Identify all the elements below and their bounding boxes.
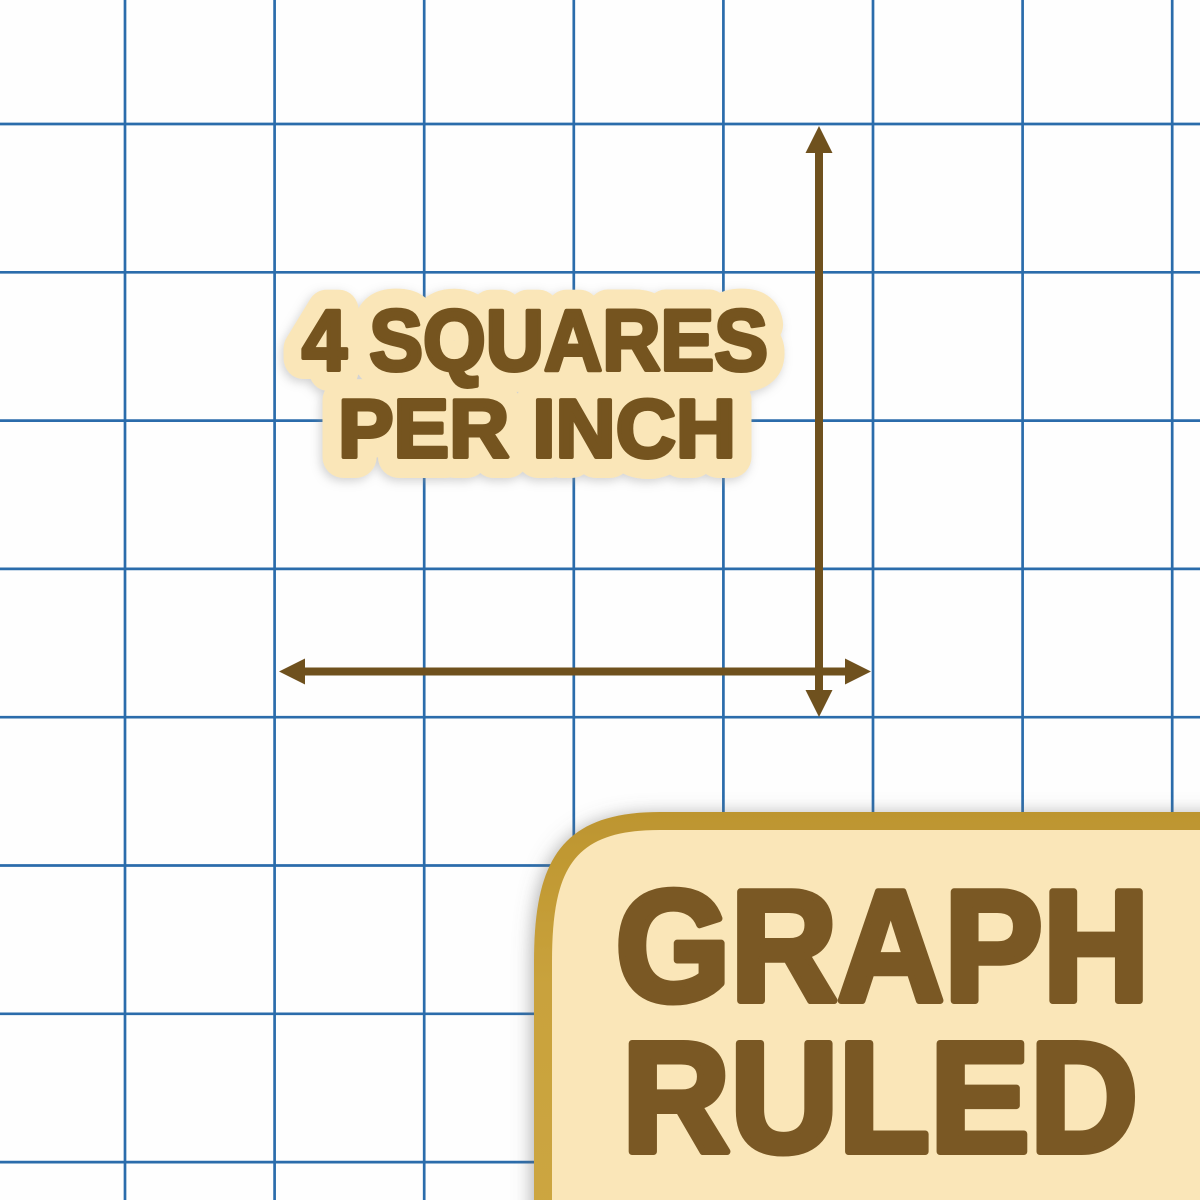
svg-text:RULED: RULED: [622, 1011, 1138, 1186]
svg-text:4 SQUARES: 4 SQUARES: [302, 293, 768, 389]
svg-text:GRAPH: GRAPH: [616, 859, 1150, 1035]
svg-text:PER INCH: PER INCH: [338, 382, 736, 475]
